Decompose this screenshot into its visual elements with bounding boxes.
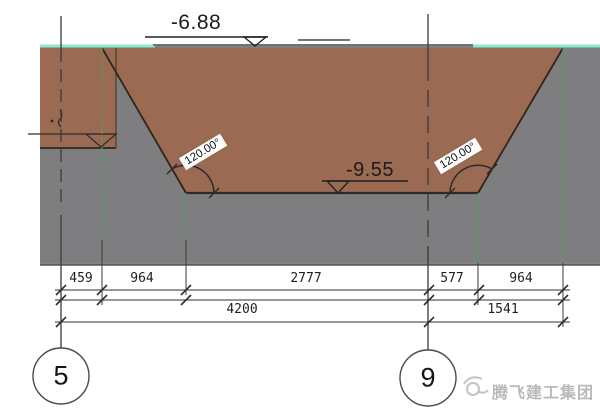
centerline-mark-dot xyxy=(51,120,54,123)
dim-577: 577 xyxy=(440,271,463,286)
grid-bubble-5-label: 5 xyxy=(53,361,68,392)
excavation-section-drawing: -6.88 -9.55 120.00° 120.00° 459 964 2777… xyxy=(0,0,600,414)
dim-1541: 1541 xyxy=(487,302,518,317)
dim-964-right: 964 xyxy=(509,271,532,286)
dim-4200: 4200 xyxy=(226,302,257,317)
dim-964-left: 964 xyxy=(130,271,153,286)
grid-bubble-9-label: 9 xyxy=(420,363,435,394)
drawing-canvas xyxy=(0,0,600,414)
dim-459: 459 xyxy=(69,271,92,286)
watermark-text: 腾飞建工集团 xyxy=(492,379,594,403)
pile-cap-block xyxy=(40,48,116,148)
elevation-top-label: -6.88 xyxy=(146,11,246,35)
elevation-bottom-label: -9.55 xyxy=(320,159,420,182)
watermark-logo-icon xyxy=(464,377,488,395)
dim-2777: 2777 xyxy=(290,271,321,286)
